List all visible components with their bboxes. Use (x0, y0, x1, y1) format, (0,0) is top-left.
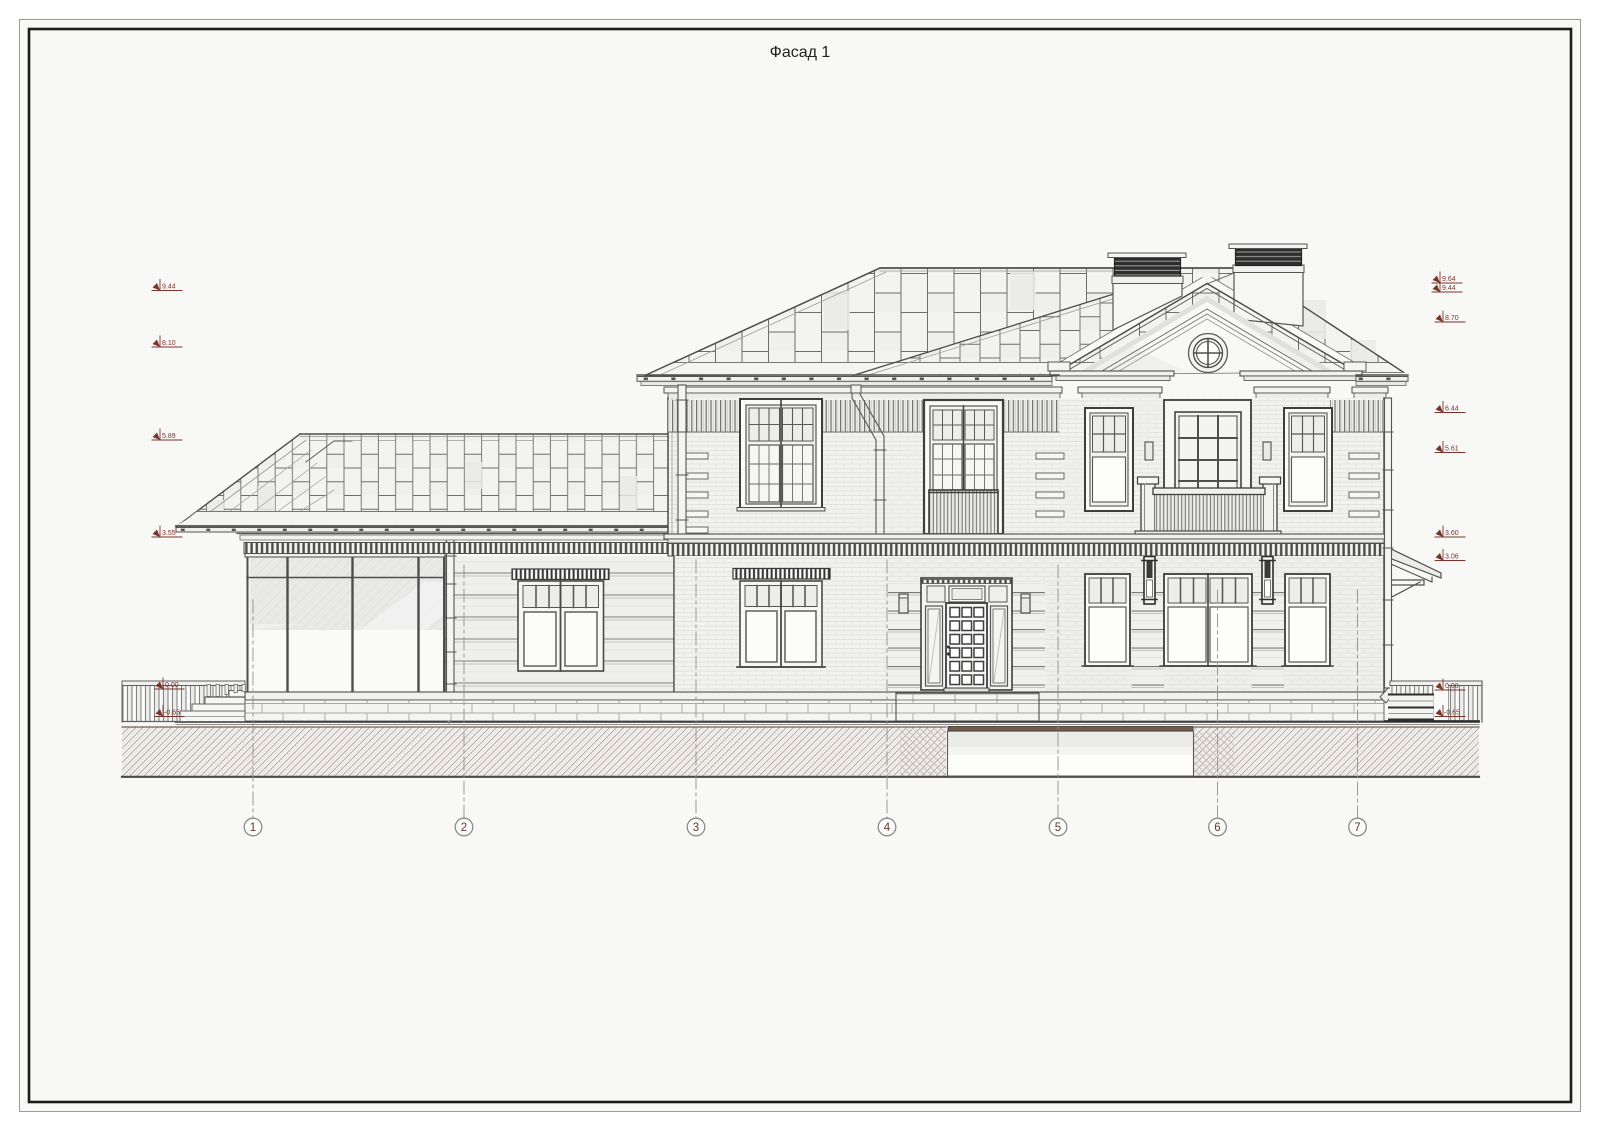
svg-text:3.06: 3.06 (1445, 554, 1459, 561)
svg-text:6.44: 6.44 (1445, 406, 1459, 413)
svg-text:5.89: 5.89 (162, 433, 176, 440)
svg-text:1: 1 (250, 822, 256, 834)
svg-text:5.61: 5.61 (1445, 446, 1459, 453)
svg-text:3.55: 3.55 (162, 530, 176, 537)
svg-text:4: 4 (884, 822, 891, 834)
svg-text:9.64: 9.64 (1442, 276, 1456, 283)
svg-text:2: 2 (461, 822, 467, 834)
svg-text:6: 6 (1214, 822, 1220, 834)
svg-text:-0.65: -0.65 (164, 710, 180, 717)
svg-text:Фасад 1: Фасад 1 (770, 44, 831, 61)
svg-text:3: 3 (693, 822, 699, 834)
svg-text:8.70: 8.70 (1445, 315, 1459, 322)
svg-text:0.00: 0.00 (1445, 683, 1459, 690)
svg-text:-0.65: -0.65 (1444, 710, 1460, 717)
svg-text:5: 5 (1055, 822, 1061, 834)
svg-text:9.44: 9.44 (1442, 285, 1456, 292)
svg-text:9.44: 9.44 (162, 284, 176, 291)
svg-text:0.00: 0.00 (165, 682, 179, 689)
svg-text:8.10: 8.10 (162, 340, 176, 347)
svg-text:3.60: 3.60 (1445, 530, 1459, 537)
svg-text:7: 7 (1354, 822, 1360, 834)
